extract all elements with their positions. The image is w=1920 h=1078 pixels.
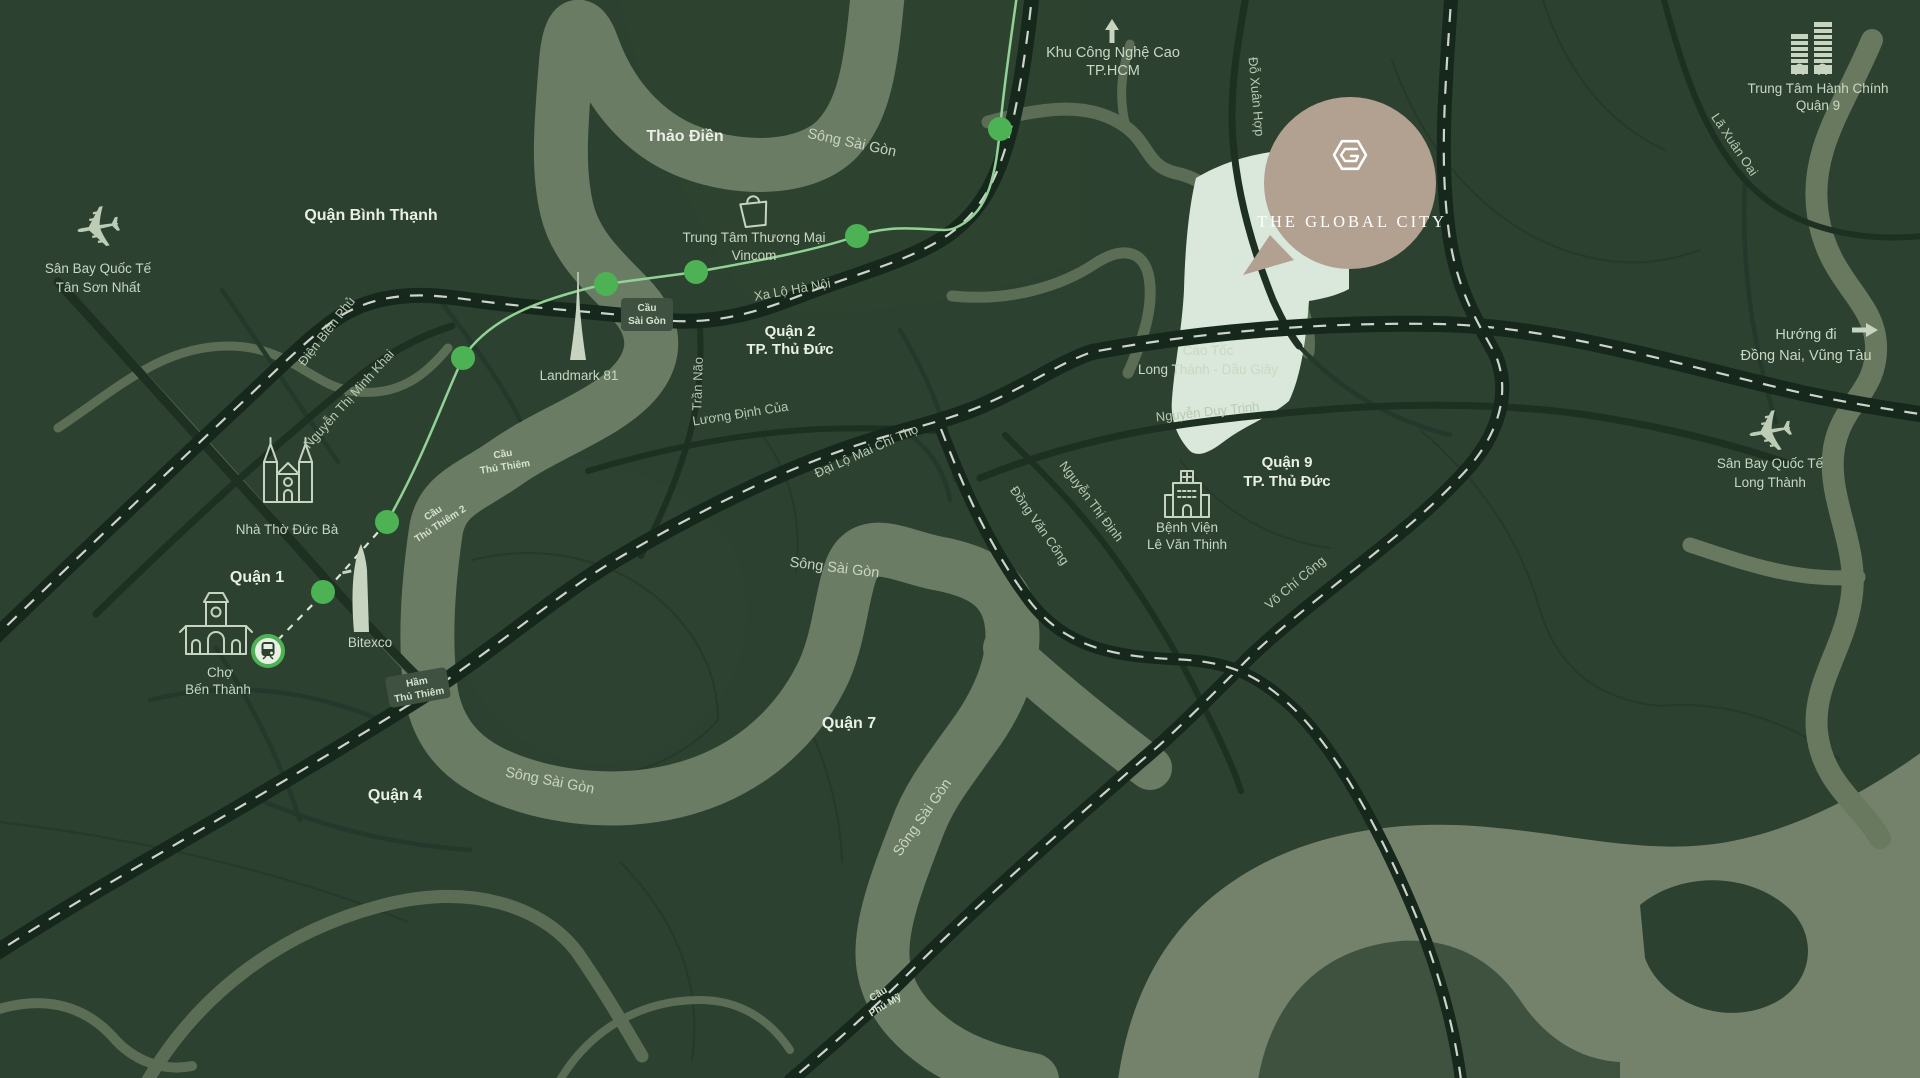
svg-text:Long Thành - Dầu Giây: Long Thành - Dầu Giây: [1138, 362, 1278, 377]
svg-text:Bến Thành: Bến Thành: [185, 682, 251, 697]
poi-label-bitexco: Bitexco: [348, 635, 392, 650]
cathedral-icon: [264, 438, 312, 502]
road-label-do-xuan-hop: Đỗ Xuân Hợp: [1246, 56, 1268, 136]
svg-text:Tân Sơn Nhất: Tân Sơn Nhất: [56, 280, 141, 295]
hospital-icon: [1165, 471, 1209, 517]
road-label-luong-dinh-cua: Lương Định Của: [691, 398, 790, 428]
district-label-binh-thanh: Quận Bình Thạnh: [304, 207, 437, 224]
road-label-cao-toc: Cao Tốc: [1183, 343, 1234, 358]
svg-text:Cầu: Cầu: [638, 302, 657, 314]
poi-label-cathedral: Nhà Thờ Đức Bà: [236, 522, 339, 537]
poi-label-admin-center: Trung Tâm Hành Chính: [1747, 81, 1888, 96]
poi-label-ben-thanh: Chợ: [207, 665, 233, 680]
government-building-icon: [1791, 22, 1832, 74]
road-label-nguyen-thi-minh-khai: Nguyễn Thị Minh Khai: [300, 346, 397, 451]
river-east-band: [1816, 40, 1880, 838]
poi-label-hi-tech-park: Khu Công Nghệ Cao: [1046, 45, 1180, 61]
map-canvas: Cầu Sài Gòn Cầu Thủ Thiêm Cầu Thủ Thiêm …: [0, 0, 1920, 1078]
district-label-quan-7: Quận 7: [822, 715, 876, 732]
global-city-logo-text: THE GLOBAL CITY: [1257, 212, 1447, 231]
poi-label-lt-airport: Sân Bay Quốc Tế: [1717, 456, 1824, 471]
svg-text:Sài Gòn: Sài Gòn: [628, 316, 666, 327]
road-label-dien-bien-phu: Điện Biên Phủ: [295, 294, 358, 369]
district-label-quan-1: Quận 1: [230, 569, 284, 586]
svg-text:Quận 9: Quận 9: [1796, 98, 1840, 113]
airplane-icon: ✈: [69, 191, 129, 266]
metro-station-icon: [253, 636, 283, 666]
road-nguyen-duy-trinh: [980, 405, 1790, 478]
district-label-thao-dien: Thảo Điền: [646, 128, 723, 145]
market-icon: [180, 593, 252, 654]
svg-text:TP.HCM: TP.HCM: [1086, 63, 1140, 79]
district-label-quan-2: Quận 2: [765, 323, 816, 340]
poi-label-tsn-airport: Sân Bay Quốc Tế: [45, 261, 152, 276]
district-label-quan-4: Quận 4: [368, 787, 422, 804]
svg-text:TP. Thủ Đức: TP. Thủ Đức: [1243, 473, 1330, 490]
poi-label-landmark: Landmark 81: [540, 368, 619, 383]
location-map: Cầu Sài Gòn Cầu Thủ Thiêm Cầu Thủ Thiêm …: [0, 0, 1920, 1078]
poi-label-hospital: Bệnh Viện: [1156, 520, 1218, 535]
global-city-logo: THE GLOBAL CITY: [1243, 97, 1447, 275]
direction-label-dong-nai: Hướng đi: [1775, 327, 1836, 343]
road-label-tran-nao: Trần Não: [689, 357, 706, 411]
svg-text:TP. Thủ Đức: TP. Thủ Đức: [746, 341, 833, 358]
arrow-up-icon: [1105, 19, 1119, 43]
svg-text:Lê Văn Thịnh: Lê Văn Thịnh: [1147, 537, 1227, 552]
badge-cau-sai-gon: Cầu Sài Gòn: [621, 298, 673, 331]
svg-text:Đồng Nai, Vũng Tàu: Đồng Nai, Vũng Tàu: [1740, 348, 1871, 364]
poi-label-vincom: Trung Tâm Thương Mại: [683, 230, 826, 245]
svg-text:Long Thành: Long Thành: [1734, 475, 1806, 490]
svg-text:Vincom: Vincom: [732, 248, 777, 263]
district-label-quan-9: Quận 9: [1262, 454, 1313, 471]
